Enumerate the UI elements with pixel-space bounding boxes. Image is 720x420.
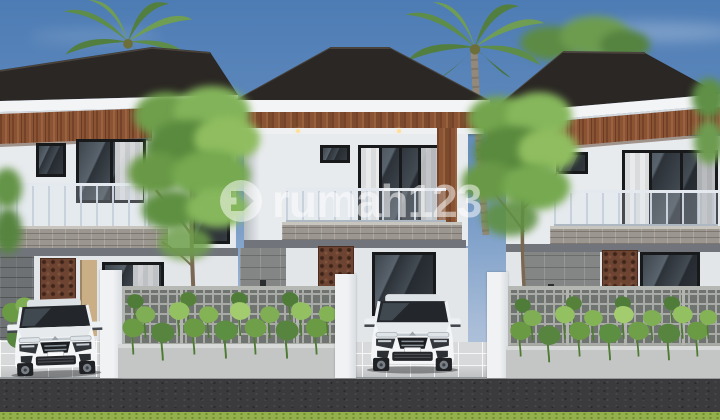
rendered-photo: rumah123 [0, 0, 720, 420]
grass-verge [0, 412, 720, 420]
taro-plants-left [116, 290, 340, 364]
watermark-text: rumah123 [272, 178, 481, 224]
white-mpv-middle [363, 287, 462, 374]
gate-pillar [335, 274, 356, 378]
taro-plants-right [504, 292, 720, 368]
road [0, 377, 720, 415]
white-mpv-left [3, 290, 108, 380]
watermark: rumah123 [218, 178, 481, 224]
left-edge-foliage [0, 168, 22, 258]
right-edge-foliage [692, 78, 720, 168]
rumah123-logo-icon [218, 178, 264, 224]
